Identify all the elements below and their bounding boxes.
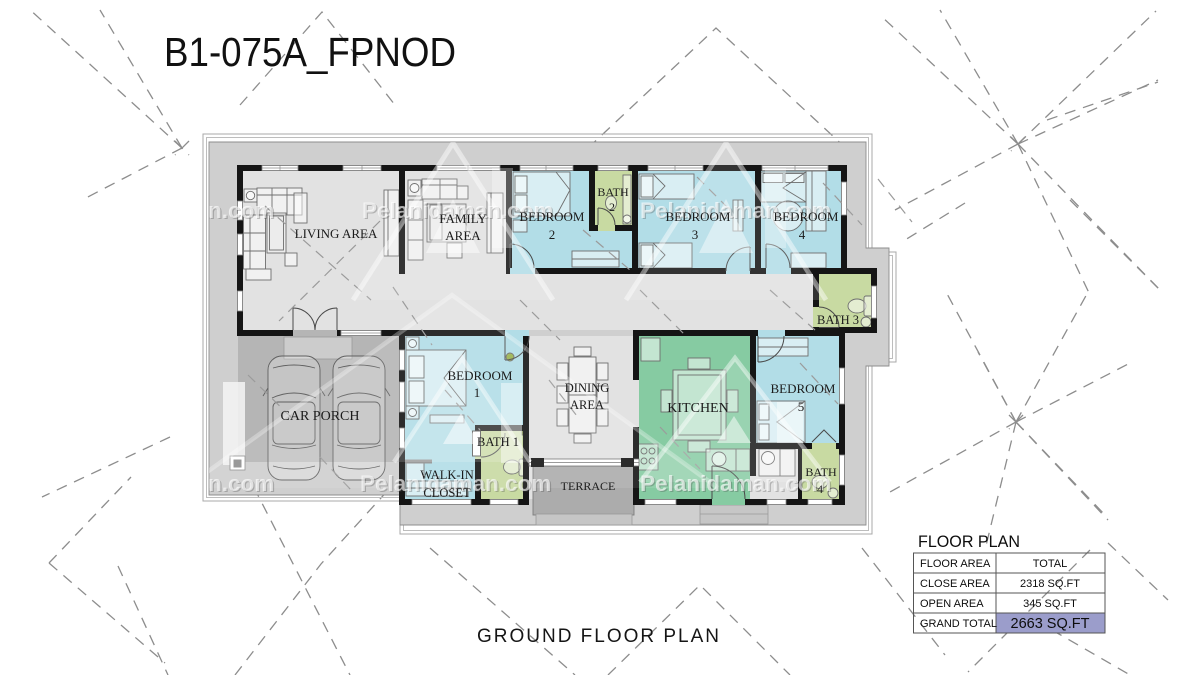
svg-text:GROUND FLOOR PLAN: GROUND FLOOR PLAN	[477, 626, 723, 647]
svg-text:BATH 1: BATH 1	[477, 435, 519, 449]
svg-text:BATH: BATH	[805, 465, 837, 479]
svg-text:LIVING AREA: LIVING AREA	[295, 226, 378, 241]
svg-text:BATH 3: BATH 3	[817, 313, 859, 327]
svg-text:GRAND TOTAL: GRAND TOTAL	[920, 618, 997, 630]
svg-text:CLOSET: CLOSET	[423, 486, 471, 500]
svg-text:3: 3	[692, 227, 699, 242]
svg-text:DINING: DINING	[565, 381, 609, 395]
svg-text:345 SQ.FT: 345 SQ.FT	[1023, 598, 1077, 610]
svg-text:BATH: BATH	[597, 185, 629, 199]
svg-text:B1-075A_FPNOD: B1-075A_FPNOD	[164, 29, 456, 75]
svg-text:2: 2	[609, 200, 615, 214]
svg-text:5: 5	[798, 399, 805, 414]
svg-text:4: 4	[799, 227, 806, 242]
svg-text:TERRACE: TERRACE	[561, 479, 616, 493]
svg-text:2318 SQ.FT: 2318 SQ.FT	[1020, 578, 1080, 590]
svg-text:2663 SQ.FT: 2663 SQ.FT	[1011, 616, 1090, 632]
svg-text:Pelanidaman.com: Pelanidaman.com	[640, 471, 831, 496]
svg-text:BEDROOM: BEDROOM	[519, 209, 584, 224]
svg-text:AREA: AREA	[570, 398, 604, 412]
svg-text:4: 4	[817, 482, 823, 496]
svg-text:KITCHEN: KITCHEN	[667, 401, 728, 416]
svg-text:BEDROOM: BEDROOM	[773, 209, 838, 224]
svg-text:TOTAL: TOTAL	[1033, 558, 1067, 570]
svg-text:FLOOR AREA: FLOOR AREA	[920, 558, 991, 570]
svg-text:OPEN AREA: OPEN AREA	[920, 598, 984, 610]
svg-text:BEDROOM: BEDROOM	[447, 368, 512, 383]
svg-text:1: 1	[474, 385, 481, 400]
svg-text:CLOSE AREA: CLOSE AREA	[920, 578, 990, 590]
svg-text:WALK-IN: WALK-IN	[420, 468, 473, 482]
svg-text:FAMILY: FAMILY	[439, 211, 487, 226]
svg-text:AREA: AREA	[445, 228, 481, 243]
svg-text:2: 2	[549, 227, 556, 242]
svg-text:BEDROOM: BEDROOM	[665, 209, 730, 224]
svg-text:CAR PORCH: CAR PORCH	[281, 409, 360, 424]
svg-text:FLOOR PLAN: FLOOR PLAN	[918, 532, 1020, 551]
svg-text:BEDROOM: BEDROOM	[770, 381, 835, 396]
